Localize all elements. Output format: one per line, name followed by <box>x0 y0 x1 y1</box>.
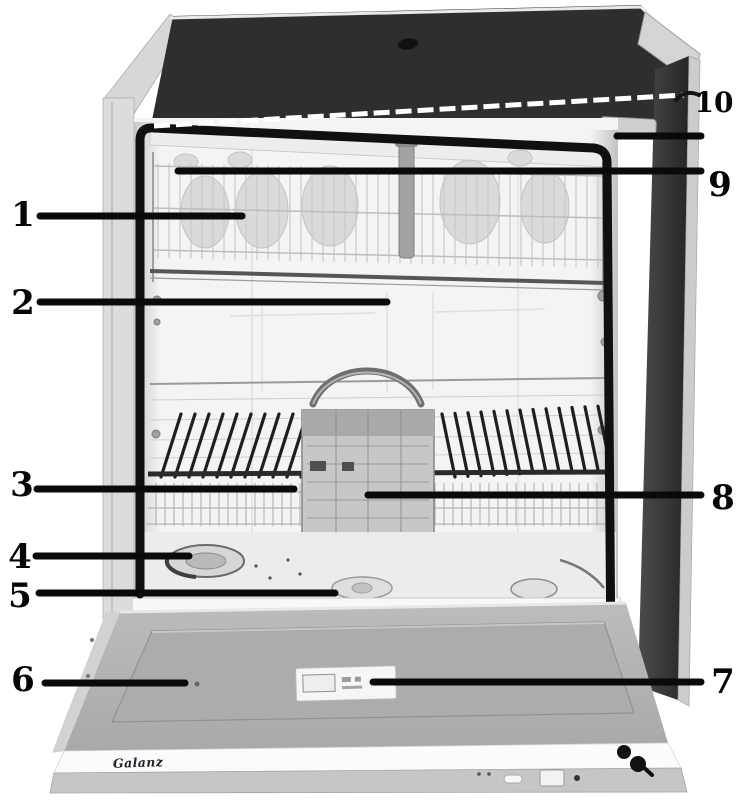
callout-number-7: 7 <box>711 662 735 702</box>
inner-water-tube <box>399 142 414 258</box>
callout-number-6: 6 <box>11 660 35 700</box>
callout-number-9: 9 <box>708 165 732 205</box>
basket-dark-slot-1 <box>310 461 326 471</box>
lower-spray-arm <box>332 577 392 599</box>
callout-number-10: 10 <box>695 86 734 119</box>
rating-label-mark-1 <box>342 677 351 682</box>
cabinet-left-edge <box>103 98 134 626</box>
kickplate-dot <box>574 775 580 781</box>
tub-interior <box>132 118 620 611</box>
callout-number-2: 2 <box>11 283 35 323</box>
callout-number-5: 5 <box>8 576 32 616</box>
open-door: Galanz <box>50 603 687 793</box>
kickplate-pill <box>504 775 522 783</box>
basket-dark-slot-2 <box>342 462 354 471</box>
diagram-canvas: Galanz 1 2 3 4 5 6 7 8 9 <box>0 0 739 800</box>
rating-label-box <box>303 674 335 692</box>
hinge-pin-1 <box>90 638 94 642</box>
kickplate-square <box>540 770 564 786</box>
rating-label-mark-2 <box>355 677 361 682</box>
door-screw <box>195 682 200 687</box>
filter-assembly <box>167 545 244 577</box>
dishwasher-parts-diagram: Galanz 1 2 3 4 5 6 7 8 9 <box>0 0 739 800</box>
callout-number-8: 8 <box>711 478 735 518</box>
rating-label-mark-3 <box>342 686 362 690</box>
callout-number-1: 1 <box>11 195 35 235</box>
hinge-foot-1 <box>617 745 631 759</box>
callout-number-4: 4 <box>8 537 32 577</box>
brand-logo: Galanz <box>113 754 164 771</box>
hinge-pin-2 <box>86 674 90 678</box>
tub-floor <box>132 532 620 611</box>
callout-number-3: 3 <box>10 465 34 505</box>
